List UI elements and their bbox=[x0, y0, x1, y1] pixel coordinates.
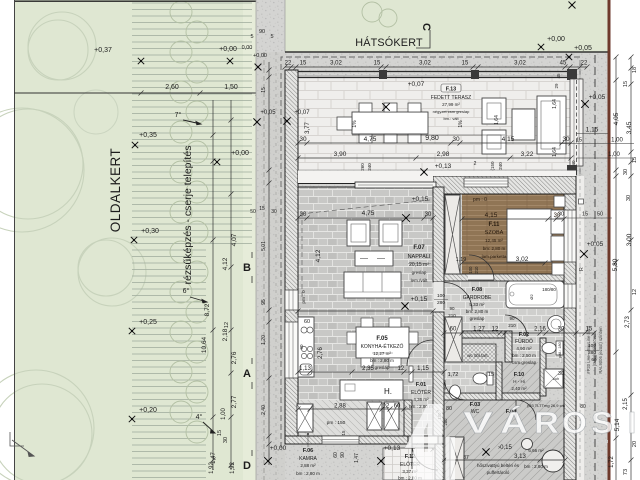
svg-text:1,64: 1,64 bbox=[552, 147, 558, 157]
svg-text:30: 30 bbox=[223, 437, 229, 443]
svg-text:pm : 150: pm : 150 bbox=[327, 420, 346, 426]
svg-text:9,80: 9,80 bbox=[425, 135, 439, 142]
svg-text:KAMRA: KAMRA bbox=[299, 456, 317, 462]
svg-text:+0,05: +0,05 bbox=[587, 241, 604, 248]
svg-text:60: 60 bbox=[333, 452, 339, 458]
svg-text:+0,35: +0,35 bbox=[139, 132, 157, 139]
svg-text:1,19: 1,19 bbox=[456, 257, 467, 263]
svg-text:30: 30 bbox=[558, 212, 564, 218]
svg-text:F.07: F.07 bbox=[413, 245, 425, 251]
svg-text:2: 2 bbox=[474, 161, 477, 167]
svg-text:greslap: greslap bbox=[375, 365, 390, 370]
svg-text:ELŐTÉR: ELŐTÉR bbox=[411, 389, 431, 396]
svg-text:+0,05: +0,05 bbox=[260, 110, 276, 116]
svg-text:240: 240 bbox=[367, 163, 372, 171]
svg-text:+0,05: +0,05 bbox=[589, 94, 606, 101]
svg-text:15: 15 bbox=[576, 138, 582, 144]
svg-text:5,80: 5,80 bbox=[612, 258, 619, 271]
svg-text:5,01: 5,01 bbox=[261, 241, 267, 251]
svg-text:pm : 0: pm : 0 bbox=[301, 290, 307, 304]
svg-text:1,72: 1,72 bbox=[609, 456, 615, 468]
svg-text:1,20: 1,20 bbox=[261, 335, 267, 345]
svg-text:20: 20 bbox=[632, 441, 638, 447]
svg-text:›0,15: ›0,15 bbox=[498, 445, 512, 451]
svg-text:R: R bbox=[534, 405, 559, 440]
svg-text:4,75: 4,75 bbox=[362, 210, 375, 217]
svg-text:+0,05: +0,05 bbox=[574, 45, 592, 52]
svg-text:280: 280 bbox=[437, 300, 445, 306]
svg-text:2,35: 2,35 bbox=[362, 366, 374, 372]
svg-text:30: 30 bbox=[425, 212, 432, 218]
svg-text:45: 45 bbox=[556, 73, 561, 79]
svg-text:O: O bbox=[562, 405, 587, 440]
svg-text:+0,25: +0,25 bbox=[139, 319, 157, 326]
svg-text:15: 15 bbox=[261, 87, 267, 93]
svg-text:lem./vált: lem./vált bbox=[411, 278, 429, 283]
svg-text:4,05: 4,05 bbox=[613, 112, 620, 125]
svg-text:páll.: 180: páll.: 180 bbox=[558, 342, 562, 357]
svg-text:1,00: 1,00 bbox=[611, 138, 623, 144]
svg-text:60: 60 bbox=[394, 404, 401, 410]
svg-text:60: 60 bbox=[450, 327, 457, 333]
svg-text:15: 15 bbox=[623, 81, 629, 87]
svg-text:30: 30 bbox=[558, 327, 565, 333]
svg-text:bm : 2,80 m: bm : 2,80 m bbox=[524, 464, 548, 469]
svg-text:3,13: 3,13 bbox=[514, 454, 526, 460]
svg-text:8,72: 8,72 bbox=[204, 303, 211, 316]
svg-text:csm.greslap: csm.greslap bbox=[512, 360, 537, 365]
svg-text:2,60: 2,60 bbox=[165, 84, 179, 91]
svg-text:210: 210 bbox=[448, 313, 456, 318]
svg-text:F.13: F.13 bbox=[446, 87, 456, 93]
svg-text:29: 29 bbox=[554, 83, 559, 89]
svg-text:Ø2: Ø2 bbox=[529, 294, 534, 300]
svg-text:80: 80 bbox=[446, 406, 452, 412]
svg-text:B: B bbox=[243, 262, 251, 274]
svg-text:45: 45 bbox=[560, 61, 567, 67]
svg-text:180/80: 180/80 bbox=[542, 287, 556, 292]
svg-text:2,76: 2,76 bbox=[318, 347, 324, 359]
svg-text:4,12: 4,12 bbox=[315, 249, 322, 262]
svg-text:30: 30 bbox=[562, 136, 570, 143]
svg-text:15: 15 bbox=[462, 61, 469, 67]
svg-text:bm : 2,50 m: bm : 2,50 m bbox=[512, 353, 536, 358]
svg-text:12,45 m²: 12,45 m² bbox=[485, 238, 503, 243]
svg-text:15: 15 bbox=[217, 430, 223, 436]
svg-text:0,00: 0,00 bbox=[242, 45, 253, 51]
svg-text:+0,20: +0,20 bbox=[139, 407, 157, 414]
svg-text:73: 73 bbox=[623, 469, 629, 475]
svg-text:1,50: 1,50 bbox=[224, 84, 238, 91]
svg-text:+0,00: +0,00 bbox=[547, 36, 565, 43]
svg-text:V: V bbox=[463, 405, 493, 440]
svg-text:rézsűképzés - cserje telepítés: rézsűképzés - cserje telepítés bbox=[182, 146, 194, 285]
svg-text:C: C bbox=[420, 23, 432, 31]
svg-text:R: R bbox=[579, 267, 585, 271]
svg-text:2,76: 2,76 bbox=[231, 351, 238, 364]
svg-text:H - Hi: H - Hi bbox=[513, 379, 525, 384]
svg-text:GARDROBE: GARDROBE bbox=[463, 295, 492, 301]
svg-text:2,88 m²: 2,88 m² bbox=[300, 463, 316, 468]
svg-text:1,64: 1,64 bbox=[494, 115, 500, 125]
svg-text:30: 30 bbox=[558, 371, 564, 377]
svg-text:1,15: 1,15 bbox=[417, 366, 429, 372]
svg-text:15: 15 bbox=[582, 212, 588, 218]
svg-text:3,02: 3,02 bbox=[514, 61, 526, 67]
svg-text:2,16: 2,16 bbox=[534, 327, 546, 333]
svg-text:4°: 4° bbox=[196, 413, 203, 421]
svg-text:(150: (150 bbox=[490, 161, 495, 171]
svg-text:1,00: 1,00 bbox=[221, 408, 227, 420]
svg-text:greslap: greslap bbox=[412, 270, 427, 275]
svg-text:F.05: F.05 bbox=[376, 336, 388, 342]
svg-text:7°: 7° bbox=[175, 111, 182, 119]
svg-text:3,90: 3,90 bbox=[334, 151, 347, 158]
svg-text:3,02: 3,02 bbox=[516, 256, 529, 263]
svg-text:12: 12 bbox=[492, 327, 499, 333]
svg-text:90: 90 bbox=[449, 306, 455, 311]
svg-text:5: 5 bbox=[270, 34, 273, 40]
svg-text:+0,00: +0,00 bbox=[231, 150, 249, 157]
svg-text:12: 12 bbox=[224, 322, 230, 328]
svg-text:4,36 m²: 4,36 m² bbox=[413, 397, 429, 402]
svg-text:I: I bbox=[628, 405, 636, 440]
svg-text:12: 12 bbox=[632, 289, 638, 295]
svg-text:12: 12 bbox=[383, 404, 390, 410]
svg-text:100: 100 bbox=[437, 293, 445, 299]
svg-text:F.01: F.01 bbox=[416, 382, 426, 388]
svg-text:lam.parketta: lam.parketta bbox=[482, 254, 507, 259]
svg-text:wc öbl.tart.: wc öbl.tart. bbox=[467, 353, 489, 358]
svg-text:+0,37: +0,37 bbox=[94, 47, 112, 54]
svg-text:2,40: 2,40 bbox=[261, 405, 267, 415]
svg-text:18: 18 bbox=[632, 67, 638, 73]
svg-text:pm : 0: pm : 0 bbox=[473, 197, 487, 203]
svg-text:22: 22 bbox=[581, 61, 588, 67]
svg-text:RAL9006 (ezüst) színben: RAL9006 (ezüst) színben bbox=[598, 326, 603, 374]
svg-text:+0,00: +0,00 bbox=[270, 445, 287, 452]
svg-text:+0,00: +0,00 bbox=[219, 46, 237, 53]
svg-text:+0,13: +0,13 bbox=[435, 163, 452, 170]
svg-text:+0,13: +0,13 bbox=[384, 445, 401, 452]
svg-text:30: 30 bbox=[300, 212, 307, 218]
svg-text:2,73: 2,73 bbox=[625, 316, 631, 328]
svg-text:K Ö Z M: K Ö Z M bbox=[592, 438, 609, 444]
svg-text:2,18: 2,18 bbox=[222, 328, 229, 341]
svg-text:3,77: 3,77 bbox=[305, 122, 311, 134]
svg-text:F.08: F.08 bbox=[472, 287, 482, 293]
svg-text:1,27: 1,27 bbox=[473, 327, 485, 333]
svg-text:4,15: 4,15 bbox=[485, 212, 498, 219]
svg-text:30: 30 bbox=[623, 169, 629, 175]
svg-text:bm: 2,80 m: bm: 2,80 m bbox=[466, 309, 489, 314]
svg-text:3,45: 3,45 bbox=[626, 121, 633, 134]
svg-text:+0,07: +0,07 bbox=[408, 81, 425, 88]
svg-text:15: 15 bbox=[488, 372, 494, 378]
svg-text:10,64: 10,64 bbox=[201, 336, 208, 353]
svg-text:15: 15 bbox=[300, 61, 307, 67]
svg-text:KONYHA-ÉTKEZŐ: KONYHA-ÉTKEZŐ bbox=[361, 343, 404, 350]
svg-text:FEDETT TERASZ: FEDETT TERASZ bbox=[431, 95, 471, 101]
svg-text:260: 260 bbox=[360, 163, 365, 171]
svg-text:#P20 LHe—BauLine hom: #P20 LHe—BauLine hom bbox=[586, 326, 591, 374]
svg-text:210: 210 bbox=[474, 266, 479, 274]
svg-text:6°: 6° bbox=[183, 287, 190, 295]
svg-text:12,27 m²: 12,27 m² bbox=[373, 351, 391, 356]
svg-text:210: 210 bbox=[508, 323, 516, 328]
svg-text:22: 22 bbox=[285, 61, 292, 67]
svg-text:+0,30: +0,30 bbox=[141, 228, 159, 235]
svg-text:puffertároló: puffertároló bbox=[487, 470, 510, 475]
svg-text:bm : 2,80 m: bm : 2,80 m bbox=[296, 471, 320, 476]
svg-text:4,07: 4,07 bbox=[231, 233, 238, 246]
svg-text:1,92: 1,92 bbox=[209, 462, 215, 474]
svg-text:60: 60 bbox=[304, 319, 310, 325]
svg-text:4,15: 4,15 bbox=[502, 136, 515, 143]
svg-text:50: 50 bbox=[597, 212, 603, 218]
svg-text:+0,15: +0,15 bbox=[411, 296, 428, 303]
svg-text:50: 50 bbox=[250, 209, 256, 215]
svg-text:27,99 m²: 27,99 m² bbox=[442, 102, 460, 107]
svg-text:1,15: 1,15 bbox=[586, 127, 599, 134]
svg-text:bm.: vált: bm.: vált bbox=[443, 116, 459, 121]
svg-text:OLDALKERT: OLDALKERT bbox=[108, 148, 123, 233]
svg-text:1%: 1% bbox=[458, 120, 464, 128]
svg-text:90: 90 bbox=[299, 344, 304, 350]
svg-text:240: 240 bbox=[498, 162, 503, 170]
svg-text:5: 5 bbox=[250, 34, 253, 40]
svg-text:2,88: 2,88 bbox=[334, 404, 346, 410]
svg-text:100: 100 bbox=[468, 266, 473, 274]
svg-text:40: 40 bbox=[571, 160, 576, 166]
svg-text:+0,07: +0,07 bbox=[294, 110, 310, 116]
svg-text:hőszivattyú beltéri és: hőszivattyú beltéri és bbox=[477, 463, 520, 468]
svg-text:SZOBA: SZOBA bbox=[485, 230, 504, 236]
svg-text:4,90 m²: 4,90 m² bbox=[516, 346, 532, 351]
svg-text:bm : 2,80 m: bm : 2,80 m bbox=[370, 358, 394, 363]
svg-text:30: 30 bbox=[271, 209, 277, 215]
svg-text:15: 15 bbox=[374, 61, 381, 67]
svg-text:1,72: 1,72 bbox=[448, 372, 459, 378]
svg-text:1,47: 1,47 bbox=[354, 453, 360, 463]
svg-text:1,64: 1,64 bbox=[552, 99, 558, 109]
svg-text:87: 87 bbox=[463, 455, 469, 461]
svg-text:3,02: 3,02 bbox=[330, 61, 342, 67]
svg-text:30: 30 bbox=[452, 136, 460, 143]
svg-text:S: S bbox=[591, 405, 613, 440]
svg-text:90: 90 bbox=[509, 316, 515, 321]
svg-text:6,66 m²: 6,66 m² bbox=[528, 448, 544, 453]
svg-text:4,12: 4,12 bbox=[222, 257, 229, 270]
svg-text:12: 12 bbox=[398, 366, 405, 372]
svg-text:F.11: F.11 bbox=[488, 222, 500, 228]
svg-text:2,98: 2,98 bbox=[437, 151, 450, 158]
svg-text:5,14: 5,14 bbox=[614, 418, 621, 431]
svg-text:95: 95 bbox=[261, 299, 267, 305]
svg-text:+0,00: +0,00 bbox=[253, 53, 267, 59]
svg-text:3,02: 3,02 bbox=[419, 61, 431, 67]
svg-text:F.10: F.10 bbox=[514, 372, 524, 378]
svg-text:1,47: 1,47 bbox=[211, 452, 217, 464]
svg-text:20,15 m²: 20,15 m² bbox=[409, 262, 429, 268]
svg-text:3,00: 3,00 bbox=[626, 233, 633, 246]
svg-text:1,92: 1,92 bbox=[230, 462, 236, 474]
svg-text:ø120: ø120 bbox=[442, 380, 447, 390]
svg-text:greslap: greslap bbox=[470, 316, 485, 321]
svg-text:1,00: 1,00 bbox=[608, 152, 620, 158]
svg-text:4,75: 4,75 bbox=[364, 136, 377, 143]
svg-text:15: 15 bbox=[259, 206, 265, 212]
svg-text:5,33 m²: 5,33 m² bbox=[469, 302, 485, 307]
svg-text:bm: 2,80 m: bm: 2,80 m bbox=[483, 246, 506, 251]
svg-text:90: 90 bbox=[259, 29, 265, 35]
svg-text:15: 15 bbox=[341, 430, 346, 436]
svg-text:(üveg)szál szövet: (üveg)szál szövet bbox=[592, 333, 597, 366]
svg-text:Á: Á bbox=[500, 405, 528, 440]
svg-text:30: 30 bbox=[626, 195, 632, 201]
svg-text:280: 280 bbox=[443, 418, 448, 426]
svg-text:HÁTSÓKERT: HÁTSÓKERT bbox=[355, 36, 423, 49]
svg-text:2,77: 2,77 bbox=[231, 395, 238, 408]
svg-text:1,13: 1,13 bbox=[299, 366, 311, 372]
svg-text:90: 90 bbox=[340, 452, 346, 458]
svg-text:1%: 1% bbox=[352, 120, 358, 128]
svg-text:2,40 m²: 2,40 m² bbox=[511, 386, 527, 391]
svg-text:F.06: F.06 bbox=[303, 448, 313, 454]
svg-text:FÜRDŐ: FÜRDŐ bbox=[515, 338, 533, 345]
svg-text:A: A bbox=[243, 368, 251, 380]
svg-text:H.: H. bbox=[384, 387, 392, 396]
svg-text:D: D bbox=[243, 460, 251, 472]
svg-text:3,22: 3,22 bbox=[521, 151, 534, 158]
svg-text:30: 30 bbox=[299, 136, 307, 143]
svg-text:NAPPALI: NAPPALI bbox=[408, 254, 431, 260]
